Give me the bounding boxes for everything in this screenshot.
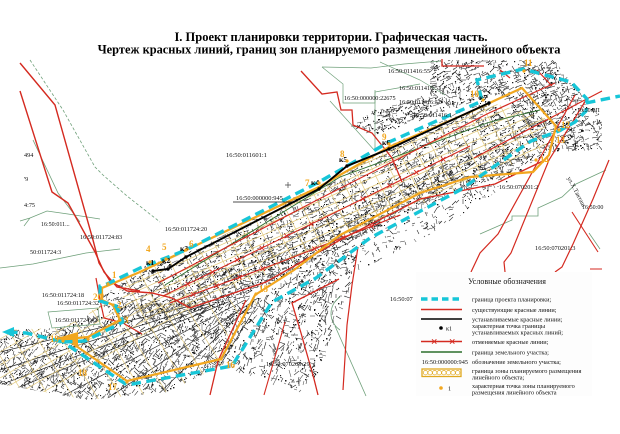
svg-text:13: 13 (556, 135, 566, 145)
svg-text:1: 1 (112, 270, 117, 280)
svg-text:17: 17 (108, 382, 118, 392)
svg-text:Чертеж красных линий, границ з: Чертеж красных линий, границ зон планиру… (98, 43, 561, 57)
svg-text:16:50:011416:53: 16:50:011416:53 (399, 85, 441, 92)
svg-text:14: 14 (540, 155, 550, 165)
svg-text:граница земельного участка;: граница земельного участка; (472, 350, 549, 357)
svg-text:7: 7 (305, 178, 310, 188)
svg-text:6: 6 (189, 239, 194, 249)
svg-text:4:75: 4:75 (24, 202, 35, 209)
svg-text:8: 8 (340, 149, 345, 159)
svg-text:16:50:070203:29: 16:50:070203:29 (266, 361, 310, 368)
svg-text:16:50:000000:22675: 16:50:000000:22675 (344, 95, 396, 102)
svg-text:16:50:011724:42: 16:50:011724:42 (55, 317, 97, 324)
svg-text:3: 3 (124, 315, 129, 325)
svg-text:16:50:011...: 16:50:011... (41, 222, 70, 228)
svg-text:размещения линейного объекта: размещения линейного объекта (472, 390, 557, 397)
svg-text:16:50:011724:32: 16:50:011724:32 (57, 300, 99, 307)
svg-text:существующие красные линии;: существующие красные линии; (472, 307, 557, 314)
svg-text:15: 15 (259, 284, 269, 294)
svg-text:'9: '9 (24, 176, 28, 183)
svg-text:19: 19 (50, 334, 60, 344)
svg-text:16:50:011724:18: 16:50:011724:18 (42, 292, 84, 299)
svg-text:18: 18 (78, 368, 88, 378)
svg-text:к1: к1 (446, 326, 452, 333)
svg-text:5: 5 (162, 242, 167, 252)
svg-text:12: 12 (561, 120, 571, 130)
svg-text:4: 4 (146, 244, 151, 254)
svg-text:16:50:011724:83: 16:50:011724:83 (80, 234, 122, 241)
svg-text:16:50:0П: 16:50:0П (577, 108, 600, 114)
svg-text:16:50:000000:945: 16:50:000000:945 (422, 359, 468, 366)
svg-text:16: 16 (226, 360, 236, 370)
svg-text:устанавливаемых красных линий;: устанавливаемых красных линий; (472, 330, 563, 337)
svg-text:1: 1 (448, 386, 451, 393)
svg-text:2: 2 (117, 300, 122, 310)
svg-text:16:50:011724:20: 16:50:011724:20 (165, 226, 207, 233)
svg-text:9: 9 (382, 132, 387, 142)
svg-text:16:50:011416:52: 16:50:011416:52 (399, 99, 441, 106)
svg-text:Условные обозначения: Условные обозначения (468, 277, 546, 286)
svg-text:к3: к3 (180, 244, 188, 253)
svg-text:494: 494 (24, 152, 33, 159)
svg-text:16:50:00: 16:50:00 (582, 205, 603, 211)
svg-text:16:50:070201:2: 16:50:070201:2 (499, 184, 538, 191)
svg-text:50:011724:3: 50:011724:3 (30, 249, 61, 256)
svg-text:16:50:011601:1: 16:50:011601:1 (226, 152, 267, 159)
svg-text:11: 11 (524, 58, 533, 68)
svg-text:16:50:070201:3: 16:50:070201:3 (535, 245, 575, 252)
svg-text:обозначение земельного участка: обозначение земельного участка; (472, 359, 561, 366)
svg-text:10: 10 (470, 89, 480, 99)
svg-text:16:50:011416:55: 16:50:011416:55 (388, 68, 430, 75)
svg-text:16:50:011416:1: 16:50:011416:1 (413, 112, 452, 119)
svg-text:16:50:000000:945: 16:50:000000:945 (236, 195, 283, 202)
svg-text:граница проекта планировки;: граница проекта планировки; (472, 297, 551, 304)
svg-text:линейного объекта;: линейного объекта; (472, 375, 525, 382)
svg-text:отменяемые красные линии;: отменяемые красные линии; (472, 339, 549, 346)
svg-text:16:50:07: 16:50:07 (390, 296, 414, 303)
